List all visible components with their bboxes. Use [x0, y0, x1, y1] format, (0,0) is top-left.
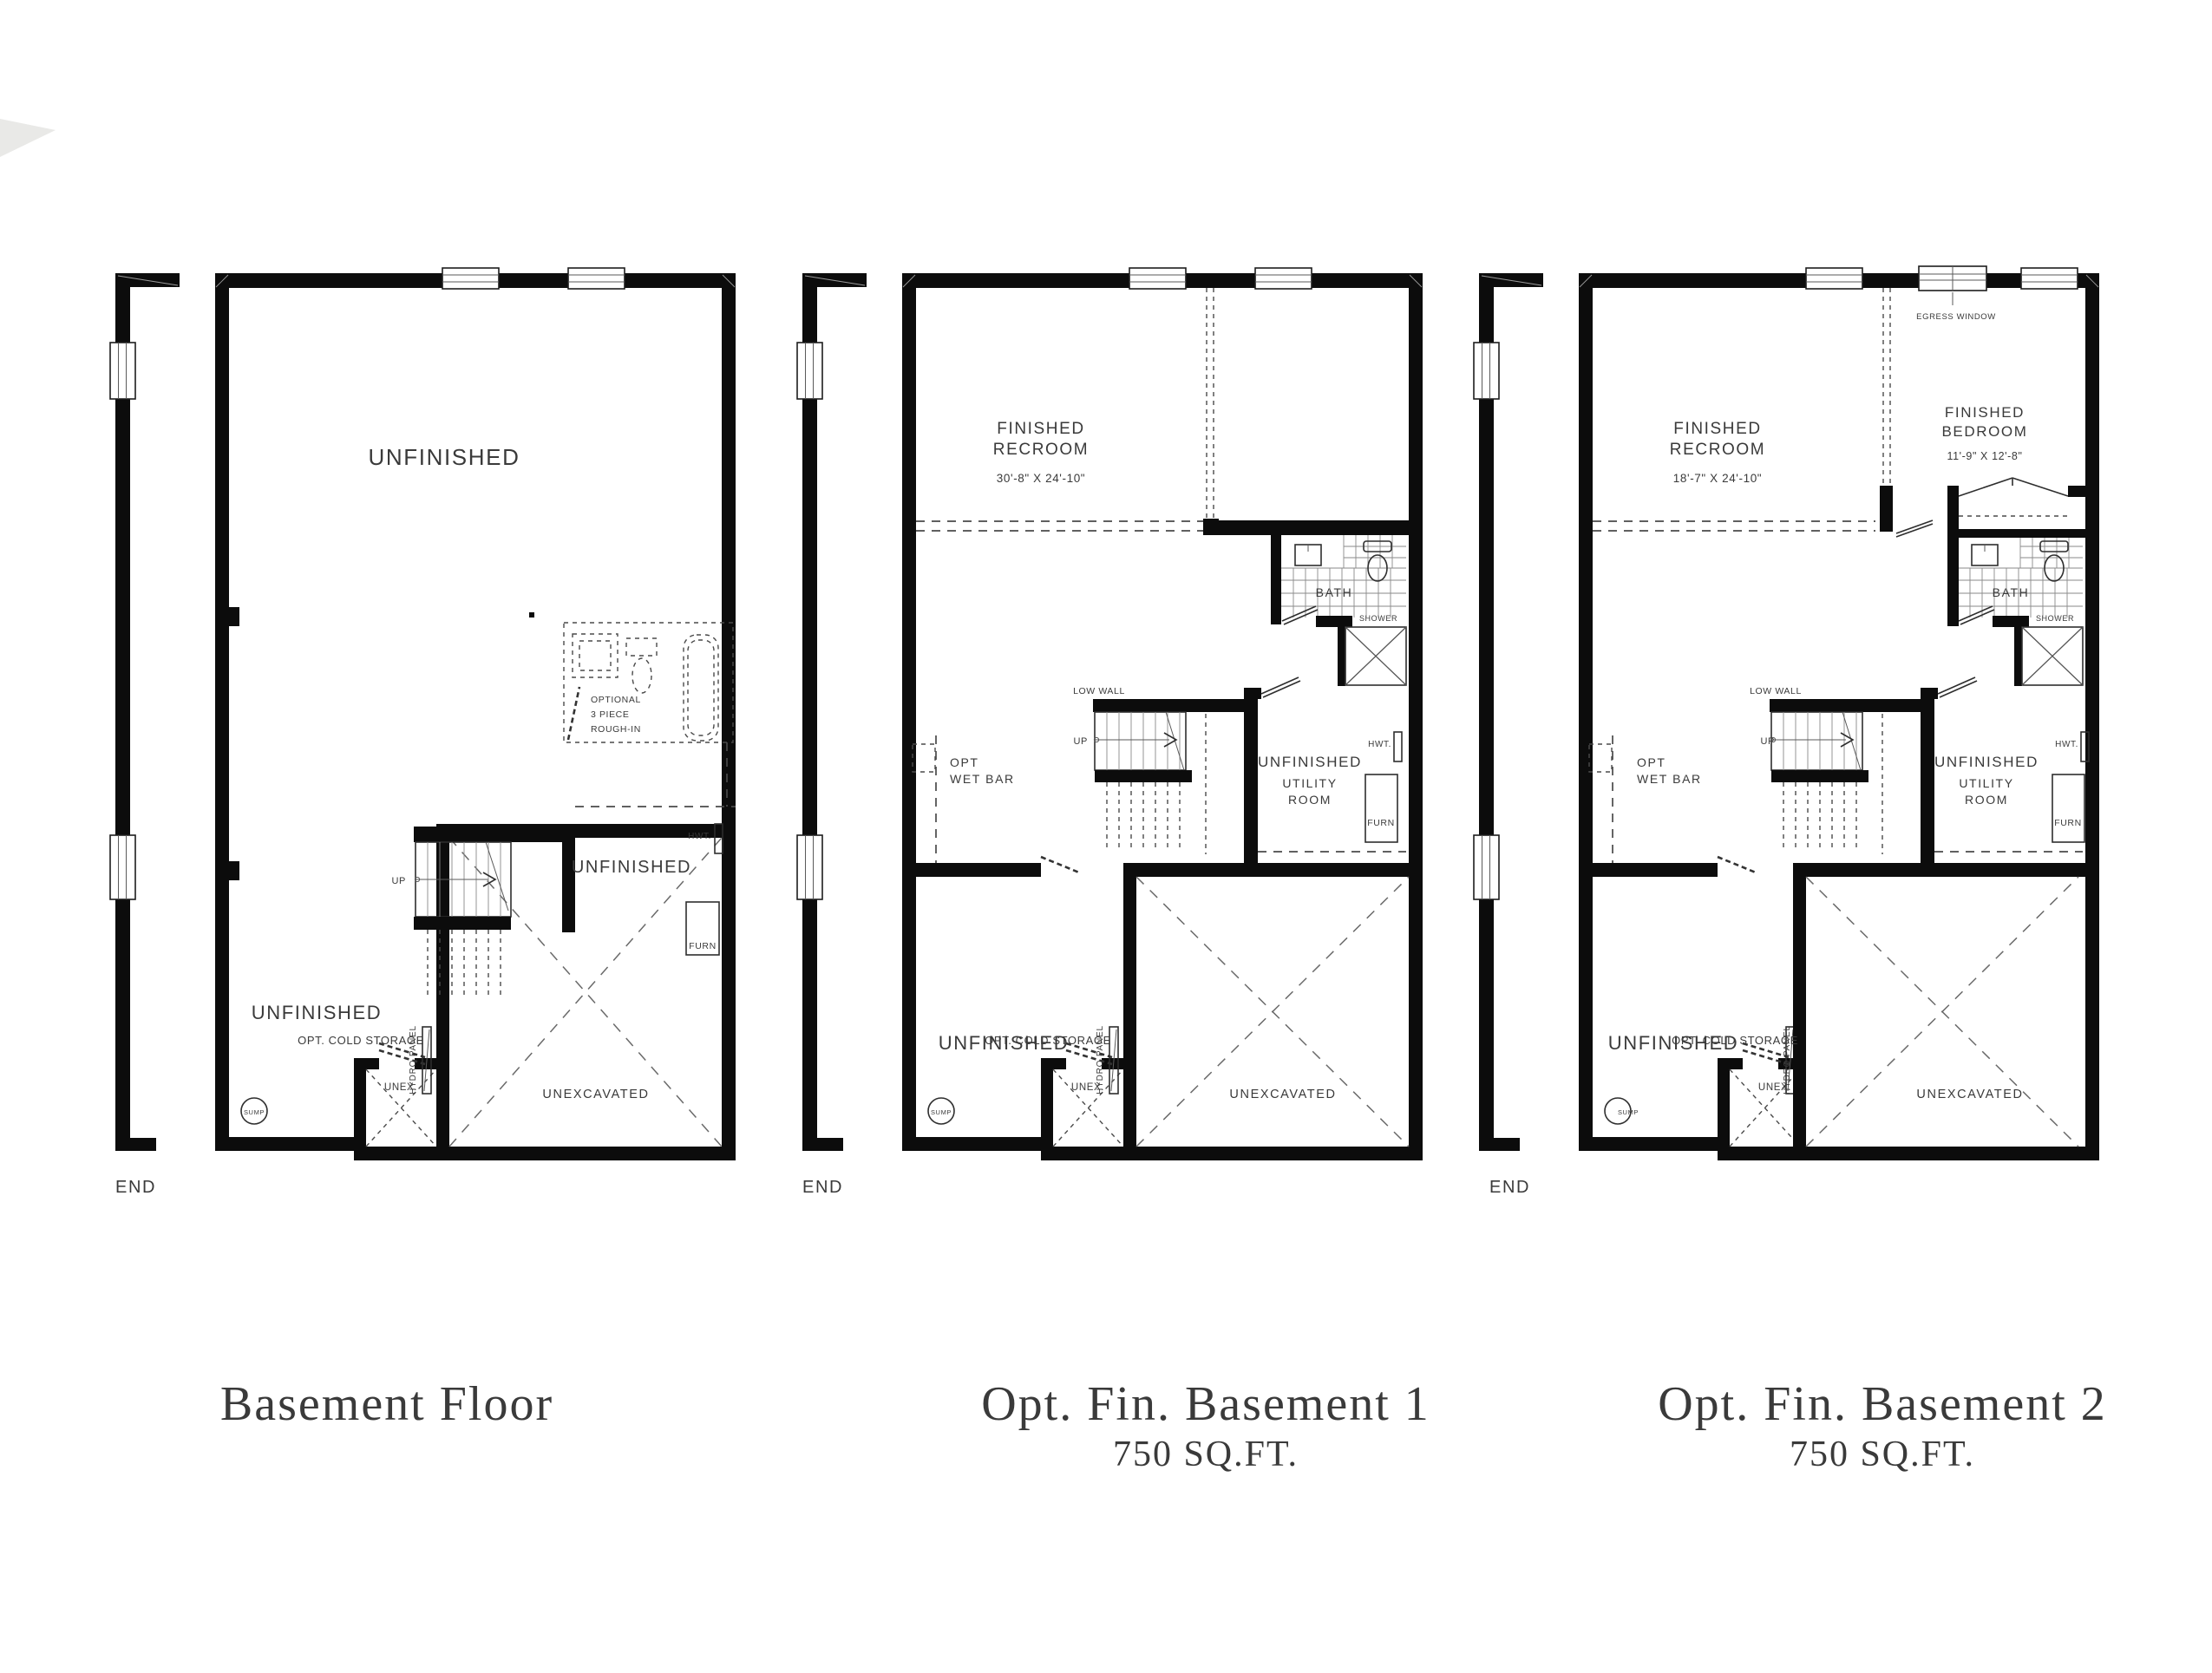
label-end: END — [1489, 1178, 1530, 1197]
label-furn: FURN — [1367, 818, 1395, 828]
wall-pilaster — [229, 607, 239, 626]
label-3-piece: 3 PIECE — [591, 709, 629, 720]
end-unit-wall — [110, 273, 180, 1151]
recroom-partition — [916, 288, 1409, 535]
label-shower: SHOWER — [2036, 614, 2074, 623]
lower-structure — [215, 1027, 736, 1160]
label-wet-bar: WET BAR — [950, 772, 1015, 786]
end-unit-wall — [1474, 273, 1543, 1151]
label-unexcavated: UNEXCAVATED — [1916, 1088, 2023, 1101]
room-label-unfinished-utility: UNFINISHED — [1934, 754, 2039, 770]
label-low-wall: LOW WALL — [1750, 686, 1802, 696]
unit-shell-walls — [902, 273, 1423, 1160]
label-up: UP — [392, 876, 406, 886]
room-label-finished: FINISHED — [997, 420, 1084, 438]
label-unex: UNEX. — [384, 1082, 417, 1093]
plan-opt-fin-basement-1: FINISHED RECROOM 30'-8" X 24'-10" BATH S… — [797, 268, 1430, 1474]
label-egress-window: EGRESS WINDOW — [1916, 312, 1996, 322]
label-wet-bar: WET BAR — [1637, 772, 1702, 786]
label-unex: UNEX. — [1071, 1082, 1104, 1093]
label-hwt: HWT. — [2055, 740, 2078, 749]
unexcavated-walls — [1793, 863, 2092, 1160]
plan-subtitle: 750 SQ.FT. — [1790, 1434, 1975, 1474]
end-unit-wall — [797, 273, 867, 1151]
unit-shell-walls — [215, 273, 736, 1160]
label-room: ROOM — [1965, 793, 2008, 807]
plan-title: Opt. Fin. Basement 2 — [1658, 1377, 2107, 1431]
room-dims: 18'-7" X 24'-10" — [1673, 472, 1762, 485]
bath-fixtures — [1258, 535, 1406, 852]
optional-bath-rough-in — [564, 623, 736, 807]
label-sump: SUMP — [1618, 1108, 1639, 1116]
hot-water-tank-icon — [1394, 732, 1402, 761]
label-room: ROOM — [1288, 793, 1332, 807]
column-dot — [529, 612, 534, 618]
room-label-unfinished-lower: UNFINISHED — [252, 1002, 382, 1023]
plan-basement-floor: UNFINISHED OPTIONAL 3 PIECE ROUGH-IN UP … — [110, 268, 736, 1431]
label-opt: OPT — [1637, 755, 1666, 769]
room-label-bedroom: BEDROOM — [1941, 423, 2027, 440]
room-label-finished: FINISHED — [1673, 420, 1761, 438]
plan-opt-fin-basement-2: FINISHED RECROOM 18'-7" X 24'-10" FINISH… — [1474, 266, 2107, 1474]
label-sump: SUMP — [244, 1108, 265, 1116]
room-label-unfinished-utility: UNFINISHED — [1258, 754, 1362, 770]
bedroom-partition — [1593, 288, 1933, 537]
unexcavated-walls — [1123, 863, 1423, 1160]
label-end: END — [115, 1178, 156, 1197]
furnace-icon — [2052, 774, 2084, 842]
floor-plan-sheet: UNFINISHED OPTIONAL 3 PIECE ROUGH-IN UP … — [0, 0, 2212, 1673]
label-shower: SHOWER — [1359, 614, 1397, 623]
label-opt-cold-storage: OPT. COLD STORAGE — [1672, 1034, 1798, 1047]
label-furn: FURN — [2054, 818, 2082, 828]
label-hwt: HWT. — [688, 832, 711, 841]
room-dims-bedroom: 11'-9" X 12'-8" — [1947, 450, 2022, 462]
label-up: UP — [1074, 736, 1088, 747]
label-rough-in: ROUGH-IN — [591, 724, 641, 735]
room-label-bath: BATH — [1316, 585, 1353, 599]
room-label-finished-bed: FINISHED — [1945, 404, 2025, 421]
wall-pilaster — [229, 861, 239, 880]
label-low-wall: LOW WALL — [1073, 686, 1125, 696]
plan-title: Basement Floor — [220, 1377, 553, 1431]
label-optional: OPTIONAL — [591, 695, 641, 705]
room-dims: 30'-8" X 24'-10" — [997, 472, 1085, 485]
room-label-unfinished-mid: UNFINISHED — [572, 858, 691, 877]
egress-window-icon — [1919, 266, 1986, 305]
label-end: END — [802, 1178, 843, 1197]
plan-title: Opt. Fin. Basement 1 — [981, 1377, 1430, 1431]
floor-plan-drawing: UNFINISHED OPTIONAL 3 PIECE ROUGH-IN UP … — [0, 0, 2212, 1673]
label-unex: UNEX. — [1758, 1082, 1791, 1093]
label-utility: UTILITY — [1959, 776, 2013, 790]
label-unexcavated: UNEXCAVATED — [542, 1088, 649, 1101]
room-label-bath: BATH — [1993, 585, 2030, 599]
label-utility: UTILITY — [1282, 776, 1337, 790]
label-opt-cold-storage: OPT. COLD STORAGE — [985, 1034, 1111, 1047]
label-sump: SUMP — [931, 1108, 952, 1116]
room-label-recroom: RECROOM — [1670, 441, 1765, 459]
plan-subtitle: 750 SQ.FT. — [1113, 1434, 1299, 1474]
label-opt-cold-storage: OPT. COLD STORAGE — [298, 1034, 424, 1047]
label-opt: OPT — [950, 755, 979, 769]
furnace-icon — [1365, 774, 1397, 842]
room-label-unfinished-top: UNFINISHED — [369, 444, 520, 470]
scan-artifact — [0, 119, 56, 157]
label-hwt: HWT. — [1368, 740, 1391, 749]
label-unexcavated: UNEXCAVATED — [1229, 1088, 1336, 1101]
room-label-recroom: RECROOM — [993, 441, 1089, 459]
label-up: UP — [1761, 736, 1775, 747]
label-furn: FURN — [689, 941, 717, 951]
